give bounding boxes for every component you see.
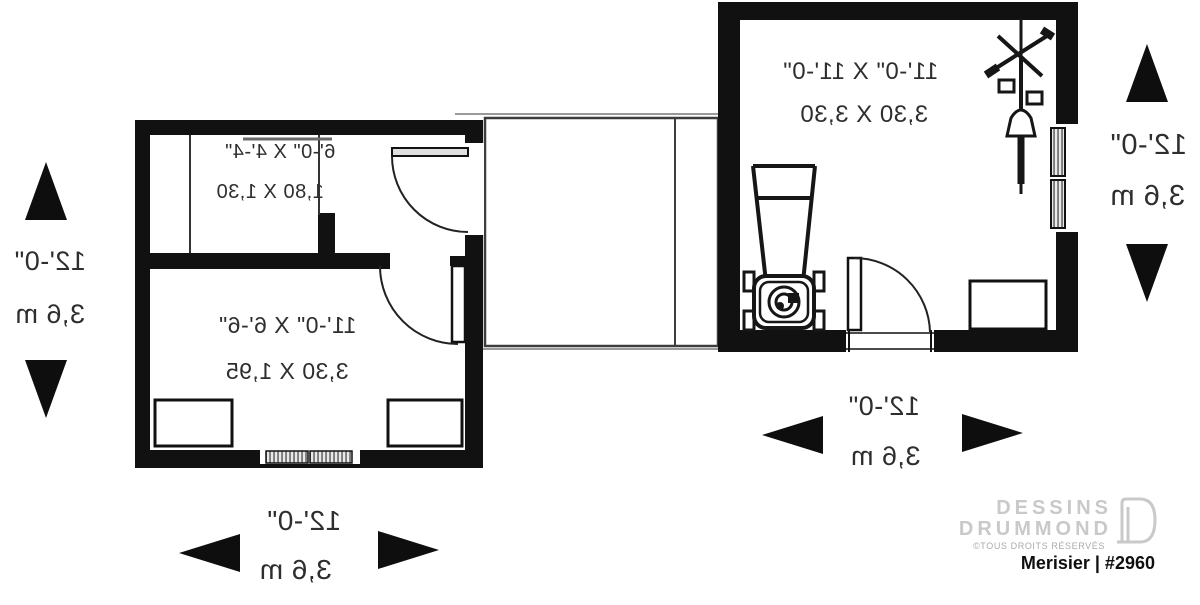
dim-left-meters: 3,6 m [0, 299, 100, 330]
garage-size-imperial: 11'-0" X 11'-0" [768, 58, 953, 86]
copyright-text: ©TOUS DROITS RÉSERVÉS [905, 541, 1105, 551]
floor-plan-page: 6'-0" X 4'-4" 1,80 X 1,30 11'-0" X 6'-6"… [0, 0, 1200, 605]
dim-bottom-right-meters: 3,6 m [838, 441, 933, 472]
garage-size-metric: 3,30 X 3,30 [775, 101, 953, 129]
logo-text-line2: DRUMMOND [900, 519, 1112, 540]
closet-size-metric: 1,80 X 1,30 [195, 181, 345, 204]
garage-box [970, 281, 1046, 329]
breezeway [455, 114, 722, 349]
dim-bottom-left-feet: 12'-0" [250, 505, 358, 537]
arrow-left-icon [762, 416, 823, 454]
arrow-right-icon [378, 531, 439, 569]
wall-vent [260, 449, 360, 464]
arrow-down-icon [25, 360, 67, 418]
arrow-up-icon [1126, 44, 1168, 102]
door-logo-icon [1114, 495, 1158, 545]
closet-size-imperial: 6'-0" X 4'-4" [185, 141, 375, 164]
dim-left-feet: 12'-0" [0, 246, 100, 277]
arrow-left-icon [179, 534, 240, 572]
logo-text-line1: DESSINS [900, 498, 1112, 519]
storage-box-right [388, 400, 462, 446]
arrow-down-icon [1126, 244, 1168, 302]
arrow-up-icon [25, 162, 67, 220]
shed-left [135, 120, 484, 468]
shed-right [718, 2, 1078, 354]
storage-size-imperial: 11'-0" X 6'-6" [190, 312, 385, 339]
window-right-wall [1051, 124, 1078, 232]
dim-bottom-left-meters: 3,6 m [243, 554, 348, 586]
plan-name-label: Merisier | #2960 [955, 553, 1155, 574]
storage-size-metric: 3,30 X 1,95 [202, 358, 372, 385]
arrow-right-icon [962, 414, 1023, 452]
storage-box-left [155, 400, 232, 446]
dim-right-feet: 12'-0" [1097, 129, 1200, 162]
dim-right-meters: 3,6 m [1095, 180, 1200, 213]
dim-bottom-right-feet: 12'-0" [833, 391, 935, 422]
